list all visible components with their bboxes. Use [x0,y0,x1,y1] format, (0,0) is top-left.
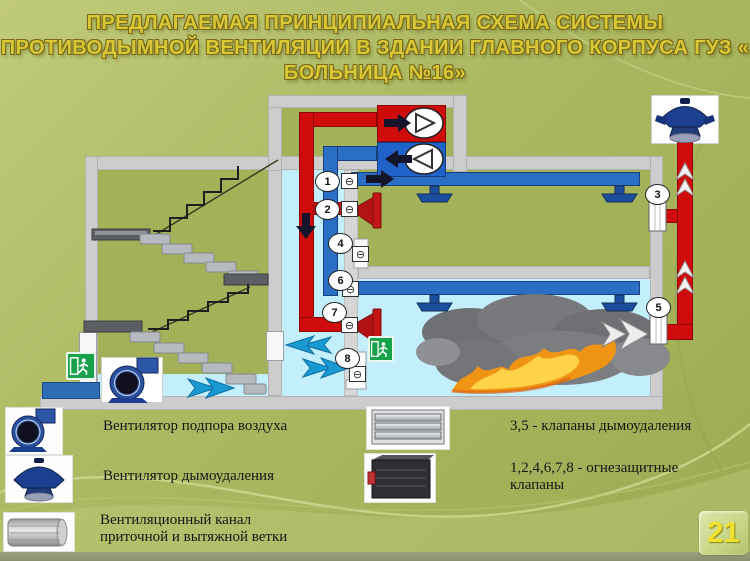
penthouse-right-wall [453,95,467,172]
damper-glyph: ⊖ [345,176,354,187]
valve-badge-2: 2 [315,199,340,220]
valve-badge-8: 8 [335,348,360,369]
valve-badge-7: 7 [322,302,347,323]
legend-label-duct-line1: Вентиляционный канал [100,512,360,529]
running-man-icon [69,356,93,376]
valve-badge-6: 6 [328,270,353,291]
legend-icon-box-smoke-damper [366,406,450,450]
roof-fan-box [651,95,719,144]
outside-air-intake-duct [42,382,100,399]
smoke-exhaust-riser-bottom-stub [663,324,693,340]
legend-label-duct: Вентиляционный канал приточной и вытяжно… [100,512,360,546]
smoke-exhaust-riser [677,142,693,340]
slide-title: ПРЕДЛАГАЕМАЯ ПРИНЦИПИАЛЬНАЯ СХЕМА СИСТЕМ… [0,11,750,86]
damper-glyph: ⊖ [353,369,362,380]
lower-floor-room [358,279,650,396]
valve-badge-5: 5 [646,297,671,318]
legend-label-fire-dampers-line1: 1,2,4,6,7,8 - огнезащитные [510,460,750,477]
legend-label-duct-line2: приточной и вытяжной ветки [100,529,360,546]
slide: ПРЕДЛАГАЕМАЯ ПРИНЦИПИАЛЬНАЯ СХЕМА СИСТЕМ… [0,0,750,561]
legend-label-smoke-dampers: 3,5 - клапаны дымоудаления [510,418,750,435]
exit-sign-stairwell [66,352,96,380]
stairwell-door [266,331,284,361]
damper-symbol-2: ⊖ [341,201,358,217]
exit-sign-corridor [368,336,394,362]
damper-symbol-4: ⊖ [352,246,369,262]
supply-fan-unit [377,105,446,142]
supply-duct-vertical [299,112,314,332]
legend-label-fire-dampers: 1,2,4,6,7,8 - огнезащитные клапаны [510,460,750,494]
damper-symbol-1: ⊖ [341,173,358,189]
legend-icon-box-duct [3,512,75,552]
legend-label-fire-dampers-line2: клапаны [510,477,750,494]
page-number: 21 [699,511,748,555]
legend-icon-box-supply-fan [5,407,63,455]
valve-badge-1: 1 [315,171,340,192]
damper-glyph: ⊖ [356,249,365,260]
smoke-exhaust-riser-valve3-stub [665,209,678,223]
legend-icon-box-fire-damper [364,453,436,503]
title-line-2: ПРОТИВОДЫМНОЙ ВЕНТИЛЯЦИИ В ЗДАНИИ ГЛАВНО… [0,36,750,61]
damper-glyph: ⊖ [345,204,354,215]
exhaust-fan-unit [377,142,446,177]
legend-label-roof-fan: Вентилятор дымоудаления [103,468,363,485]
pressurization-fan-box [101,357,163,403]
running-man-icon [370,340,392,358]
damper-glyph: ⊖ [345,320,354,331]
legend-icon-box-roof-fan [5,455,73,503]
title-line-3: БОЛЬНИЦА №16» [0,61,750,86]
valve-badge-4: 4 [328,233,353,254]
stairwell-right-wall [268,170,282,396]
title-line-1: ПРЕДЛАГАЕМАЯ ПРИНЦИПИАЛЬНАЯ СХЕМА СИСТЕМ… [0,11,750,36]
lower-ceiling-duct [351,281,640,295]
legend-label-supply-fan: Вентилятор подпора воздуха [103,418,363,435]
mid-floor-slab [358,266,650,279]
valve-badge-3: 3 [645,184,670,205]
bottom-edge-strip [0,552,750,561]
